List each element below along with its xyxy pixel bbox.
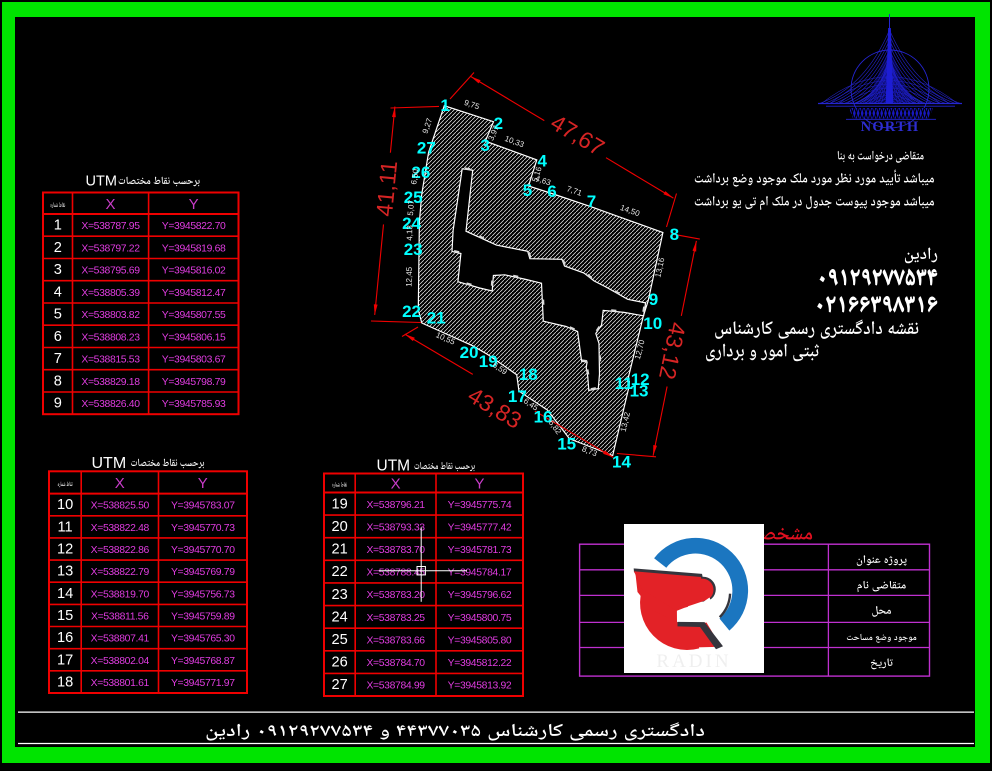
svg-text:X=538788.45: X=538788.45	[366, 568, 425, 579]
svg-text:X=538803.82: X=538803.82	[81, 310, 140, 321]
svg-text:X=538802.04: X=538802.04	[91, 656, 150, 667]
svg-text:18: 18	[57, 674, 73, 690]
svg-text:X=538808.23: X=538808.23	[81, 332, 140, 343]
svg-text:X: X	[105, 196, 115, 213]
svg-text:Y: Y	[189, 196, 199, 213]
svg-text:11: 11	[58, 519, 73, 535]
svg-text:27: 27	[417, 139, 436, 158]
svg-text:10: 10	[643, 314, 662, 333]
svg-text:X=538829.18: X=538829.18	[81, 377, 140, 388]
svg-text:Y=3945771.97: Y=3945771.97	[171, 678, 235, 689]
svg-text:23: 23	[331, 587, 347, 603]
svg-text:Y=3945800.75: Y=3945800.75	[448, 613, 512, 624]
svg-text:6: 6	[54, 329, 62, 345]
svg-text:5: 5	[523, 181, 532, 200]
svg-text:X=538783.66: X=538783.66	[366, 636, 425, 647]
svg-text:Y: Y	[198, 475, 208, 492]
svg-text:X=538805.39: X=538805.39	[81, 288, 140, 299]
svg-text:15: 15	[557, 435, 576, 454]
svg-text:1: 1	[54, 218, 62, 234]
svg-text:1: 1	[440, 96, 449, 115]
svg-text:Y=3945798.79: Y=3945798.79	[162, 377, 226, 388]
svg-text:27: 27	[331, 677, 347, 693]
svg-text:Y=3945822.70: Y=3945822.70	[162, 221, 226, 232]
svg-text:Y=3945777.42: Y=3945777.42	[448, 522, 512, 533]
svg-text:X=538784.99: X=538784.99	[366, 681, 425, 692]
svg-text:2: 2	[54, 240, 62, 256]
svg-text:Y=3945770.70: Y=3945770.70	[171, 545, 235, 556]
svg-text:7: 7	[54, 351, 62, 367]
svg-text:X=538801.61: X=538801.61	[91, 678, 150, 689]
svg-text:15: 15	[57, 608, 73, 624]
svg-text:Y=3945785.93: Y=3945785.93	[162, 399, 226, 410]
svg-text:Y=3945769.79: Y=3945769.79	[171, 567, 235, 578]
svg-text:Y=3945781.73: Y=3945781.73	[448, 545, 512, 556]
svg-text:Y=3945756.73: Y=3945756.73	[171, 589, 235, 600]
svg-text:Y=3945806.15: Y=3945806.15	[162, 332, 226, 343]
svg-text:X=538795.69: X=538795.69	[81, 266, 140, 277]
svg-text:22: 22	[331, 564, 347, 580]
svg-text:Y=3945807.55: Y=3945807.55	[162, 310, 226, 321]
svg-text:8: 8	[670, 225, 679, 244]
svg-text:21: 21	[427, 309, 446, 328]
svg-text:9: 9	[649, 290, 658, 309]
svg-text:UTM: UTM	[377, 458, 411, 475]
svg-text:Y=3945775.74: Y=3945775.74	[448, 500, 512, 511]
svg-text:X=538796.21: X=538796.21	[366, 500, 425, 511]
svg-text:Y=3945759.89: Y=3945759.89	[171, 612, 235, 623]
svg-text:4: 4	[54, 284, 62, 300]
svg-text:21: 21	[331, 542, 347, 558]
svg-text:Y=3945770.73: Y=3945770.73	[171, 523, 235, 534]
svg-text:Y=3945768.87: Y=3945768.87	[171, 656, 235, 667]
svg-text:X=538787.95: X=538787.95	[81, 221, 140, 232]
svg-text:Y=3945803.67: Y=3945803.67	[162, 355, 226, 366]
svg-text:8: 8	[54, 373, 62, 389]
svg-text:Y=3945784.17: Y=3945784.17	[448, 568, 512, 579]
svg-text:Y=3945796.62: Y=3945796.62	[448, 590, 512, 601]
svg-text:18: 18	[519, 365, 538, 384]
svg-text:Y=3945812.47: Y=3945812.47	[162, 288, 226, 299]
svg-text:23: 23	[404, 240, 423, 259]
svg-text:Y=3945812.22: Y=3945812.22	[448, 658, 512, 669]
svg-text:X=538826.40: X=538826.40	[81, 399, 140, 410]
svg-text:X=538783.25: X=538783.25	[366, 613, 425, 624]
svg-text:20: 20	[331, 519, 347, 535]
svg-text:3: 3	[54, 262, 62, 278]
svg-text:26: 26	[331, 655, 347, 671]
svg-text:X=538783.20: X=538783.20	[366, 590, 425, 601]
svg-text:5,07: 5,07	[406, 199, 416, 216]
svg-text:4,13: 4,13	[405, 225, 414, 241]
svg-text:Y=3945816.02: Y=3945816.02	[162, 266, 226, 277]
svg-text:Y: Y	[474, 476, 484, 493]
svg-text:UTM: UTM	[92, 455, 127, 472]
svg-text:41,11: 41,11	[371, 159, 402, 217]
svg-text:X=538825.50: X=538825.50	[91, 501, 150, 512]
svg-text:X=538784.70: X=538784.70	[366, 658, 425, 669]
svg-text:7: 7	[587, 192, 596, 211]
svg-text:20: 20	[460, 343, 479, 362]
svg-text:X=538811.56: X=538811.56	[91, 612, 149, 623]
svg-text:X=538797.22: X=538797.22	[81, 243, 140, 254]
svg-text:Y=3945805.80: Y=3945805.80	[448, 636, 512, 647]
svg-text:X=538815.53: X=538815.53	[81, 355, 140, 366]
svg-text:10: 10	[57, 497, 73, 513]
svg-text:13: 13	[630, 382, 649, 401]
svg-text:22: 22	[402, 302, 421, 321]
svg-text:25: 25	[331, 632, 347, 648]
svg-text:X=538819.70: X=538819.70	[91, 589, 150, 600]
svg-text:X=538783.70: X=538783.70	[366, 545, 425, 556]
svg-text:12: 12	[57, 542, 73, 558]
svg-text:19: 19	[331, 496, 347, 512]
svg-text:9: 9	[54, 396, 62, 412]
svg-text:Y=3945813.92: Y=3945813.92	[448, 681, 512, 692]
svg-text:X=538822.86: X=538822.86	[91, 545, 150, 556]
svg-text:Y=3945819.68: Y=3945819.68	[162, 243, 226, 254]
svg-text:5: 5	[54, 307, 62, 323]
svg-text:X: X	[391, 476, 401, 493]
svg-text:RADIN: RADIN	[656, 651, 731, 672]
svg-text:NORTH: NORTH	[861, 119, 920, 135]
svg-text:24: 24	[331, 609, 347, 625]
svg-text:X=538793.33: X=538793.33	[366, 522, 425, 533]
svg-text:14: 14	[57, 586, 73, 602]
svg-text:16: 16	[57, 630, 73, 646]
svg-text:X=538822.79: X=538822.79	[91, 567, 150, 578]
svg-text:12,45: 12,45	[405, 266, 414, 287]
svg-text:Y=3945783.07: Y=3945783.07	[171, 501, 235, 512]
svg-text:14: 14	[612, 453, 631, 472]
svg-text:Y=3945765.30: Y=3945765.30	[171, 634, 235, 645]
svg-text:X=538822.48: X=538822.48	[91, 523, 150, 534]
svg-text:UTM: UTM	[86, 174, 117, 190]
svg-text:X: X	[115, 475, 125, 492]
svg-text:17: 17	[57, 652, 73, 668]
svg-text:13: 13	[57, 564, 73, 580]
svg-text:X=538807.41: X=538807.41	[91, 634, 150, 645]
